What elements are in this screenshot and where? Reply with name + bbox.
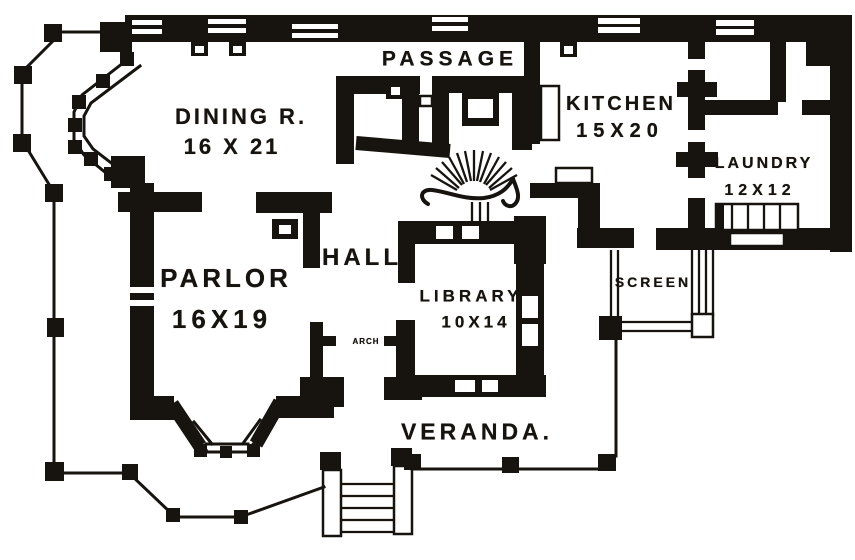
room-label-hall: HALL xyxy=(322,246,402,270)
floor-plan-drawing xyxy=(0,0,855,560)
room-dims-library: 10X14 xyxy=(441,314,510,331)
room-label-kitchen: KITCHEN xyxy=(566,94,676,114)
room-dims-dining: 16 X 21 xyxy=(184,136,281,158)
room-label-veranda: VERANDA. xyxy=(401,421,553,444)
room-dims-kitchen: 15X20 xyxy=(576,121,664,141)
floor-plan: PASSAGE DINING R. 16 X 21 KITCHEN 15X20 … xyxy=(0,0,855,560)
room-label-screen: SCREEN xyxy=(615,275,691,289)
laundry-stairs-icon xyxy=(716,204,798,230)
room-label-laundry: LAUNDRY xyxy=(715,156,814,172)
parlor-bay-window-icon xyxy=(172,402,280,458)
room-label-parlor: PARLOR xyxy=(160,265,292,291)
front-steps-icon xyxy=(320,448,412,536)
room-dims-laundry: 12X12 xyxy=(724,183,795,199)
main-staircase-icon xyxy=(422,150,518,226)
room-dims-parlor: 16X19 xyxy=(172,306,272,332)
room-label-arch: ARCH xyxy=(352,338,379,346)
room-label-library: LIBRARY xyxy=(420,288,523,305)
room-label-dining: DINING R. xyxy=(175,106,307,128)
room-label-passage: PASSAGE xyxy=(382,49,518,70)
